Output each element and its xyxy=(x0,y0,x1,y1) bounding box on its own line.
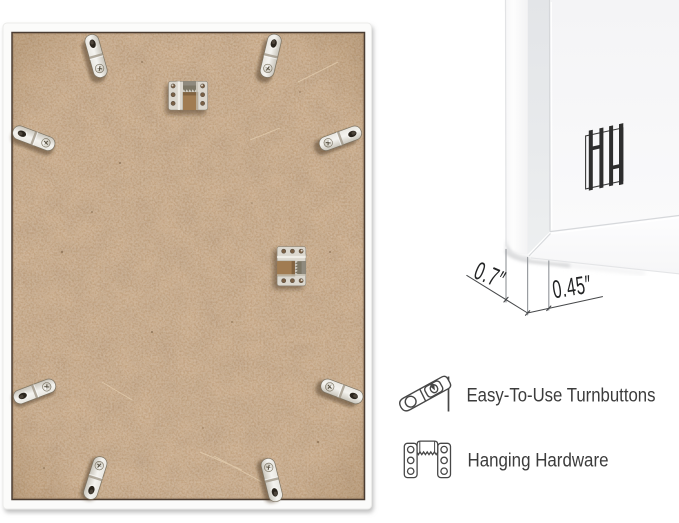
svg-text:Easy-To-Use Turnbuttons: Easy-To-Use Turnbuttons xyxy=(467,385,656,407)
svg-text:Hanging Hardware: Hanging Hardware xyxy=(468,450,609,472)
